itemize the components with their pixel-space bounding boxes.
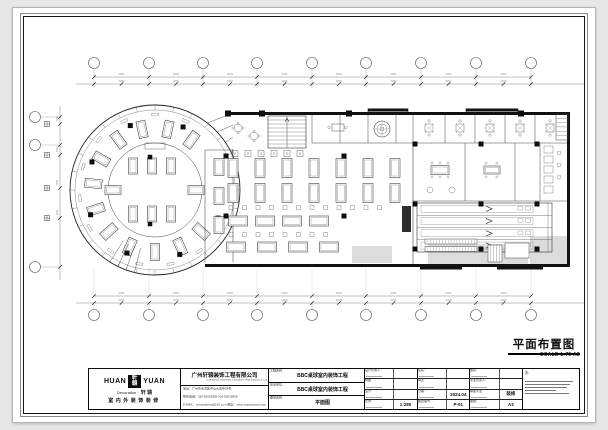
field-row: 审图专业:装修	[470, 390, 522, 400]
field-label: 图别:	[470, 369, 499, 378]
seal-char-bottom: 轅	[132, 381, 138, 387]
logo-word-yuan: YUAN	[143, 378, 165, 385]
field-column-0: 设计负责人:制图:设计:比例:1:280	[365, 369, 418, 409]
company-phone: 联系电话：020-82018555 020-82018556	[183, 395, 266, 399]
field-row: 日期:2024.04	[418, 390, 470, 400]
field-column-2: 图别:专业负责人:审图专业:装修图幅:A3	[470, 369, 522, 409]
company-name-cn: 广州轩辕装饰工程有限公司	[181, 371, 268, 379]
field-row: 制图:	[365, 379, 417, 389]
field-label: 图幅:	[470, 400, 499, 409]
client-label: 建设单位:	[270, 383, 364, 387]
field-label: 日期:	[418, 390, 447, 399]
field-row: 比例:1:280	[365, 400, 417, 409]
note-line	[525, 393, 569, 394]
notes-label: 注:	[525, 371, 577, 375]
field-value	[447, 379, 469, 388]
field-label: 专业负责人:	[470, 379, 499, 388]
field-column-1: 签名:审定:日期:2024.04图纸编号:P-01	[418, 369, 471, 409]
field-value: 装修	[500, 390, 522, 399]
field-label: 比例:	[365, 400, 394, 409]
logo-subtitle-en: Decoration ·	[117, 390, 139, 395]
title-block: HUAN 軒 轅 YUAN Decoration · 轩 辕 室内外装饰装修 广…	[88, 368, 580, 410]
field-label: 审定:	[418, 379, 447, 388]
project-name-row: 工程名称: BBC桌球室内装饰工程	[269, 369, 364, 383]
field-row: 签名:	[418, 369, 470, 379]
company-logo: HUAN 軒 轅 YUAN Decoration · 轩 辕 室内外装饰装修	[89, 369, 181, 409]
note-line	[525, 381, 573, 382]
project-info: 工程名称: BBC桌球室内装饰工程 建设单位: BBC桌球室内装饰工程 图纸名称…	[269, 369, 365, 409]
field-row: 审定:	[418, 379, 470, 389]
drawing-sheet	[12, 7, 596, 423]
company-info: 广州轩辕装饰工程有限公司 Guangzhou Xuanyuan Decorati…	[181, 369, 269, 409]
field-label: 制图:	[365, 379, 394, 388]
field-value	[394, 379, 416, 388]
field-row: 专业负责人:	[470, 379, 522, 389]
field-value: P-01	[447, 400, 469, 409]
company-address: 地址：广州市天河区中山大道中38号	[183, 387, 266, 391]
note-line	[525, 384, 570, 385]
sheet-name-row: 图纸名称: 平面图	[269, 396, 364, 409]
field-value	[500, 379, 522, 388]
field-value	[447, 369, 469, 378]
field-value	[394, 390, 416, 399]
logo-subtitle-cn: 轩 辕	[141, 389, 152, 396]
title-block-fields: 设计负责人:制图:设计:比例:1:280签名:审定:日期:2024.04图纸编号…	[365, 369, 523, 409]
field-label: 设计负责人:	[365, 369, 394, 378]
field-value: 1:280	[394, 400, 416, 409]
note-line	[525, 387, 567, 388]
logo-seal-icon: 軒 轅	[128, 375, 141, 388]
company-name-en: Guangzhou Xuanyuan Decoration Engineerin…	[206, 379, 243, 382]
client-row: 建设单位: BBC桌球室内装饰工程	[269, 383, 364, 397]
sheet-border-inner	[23, 16, 585, 414]
field-value: A3	[500, 400, 522, 409]
field-row: 设计负责人:	[365, 369, 417, 379]
field-value	[394, 369, 416, 378]
field-row: 图别:	[470, 369, 522, 379]
company-email: E-MAIL：xuanyuanzs@163.com 网址：www.xuanyua…	[183, 403, 266, 407]
logo-word-huan: HUAN	[104, 378, 126, 385]
field-label: 设计:	[365, 390, 394, 399]
drawing-page: { "sheet": { "drawing_title": "平面布置图", "…	[0, 0, 608, 430]
field-label: 图纸编号:	[418, 400, 447, 409]
drawing-scale: SCALE 1:75 A2	[508, 352, 580, 358]
logo-tagline: 室内外装饰装修	[108, 397, 161, 404]
field-row: 图纸编号:P-01	[418, 400, 470, 409]
field-row: 图幅:A3	[470, 400, 522, 409]
sheet-name-label: 图纸名称:	[270, 396, 364, 400]
field-value	[500, 369, 522, 378]
field-row: 设计:	[365, 390, 417, 400]
sheet-name-value: 平面图	[303, 399, 330, 406]
field-label: 审图专业:	[470, 390, 499, 399]
note-line	[525, 390, 556, 391]
project-name-label: 工程名称:	[270, 369, 364, 373]
field-label: 签名:	[418, 369, 447, 378]
notes: 注:	[523, 369, 579, 409]
field-value: 2024.04	[447, 390, 469, 399]
